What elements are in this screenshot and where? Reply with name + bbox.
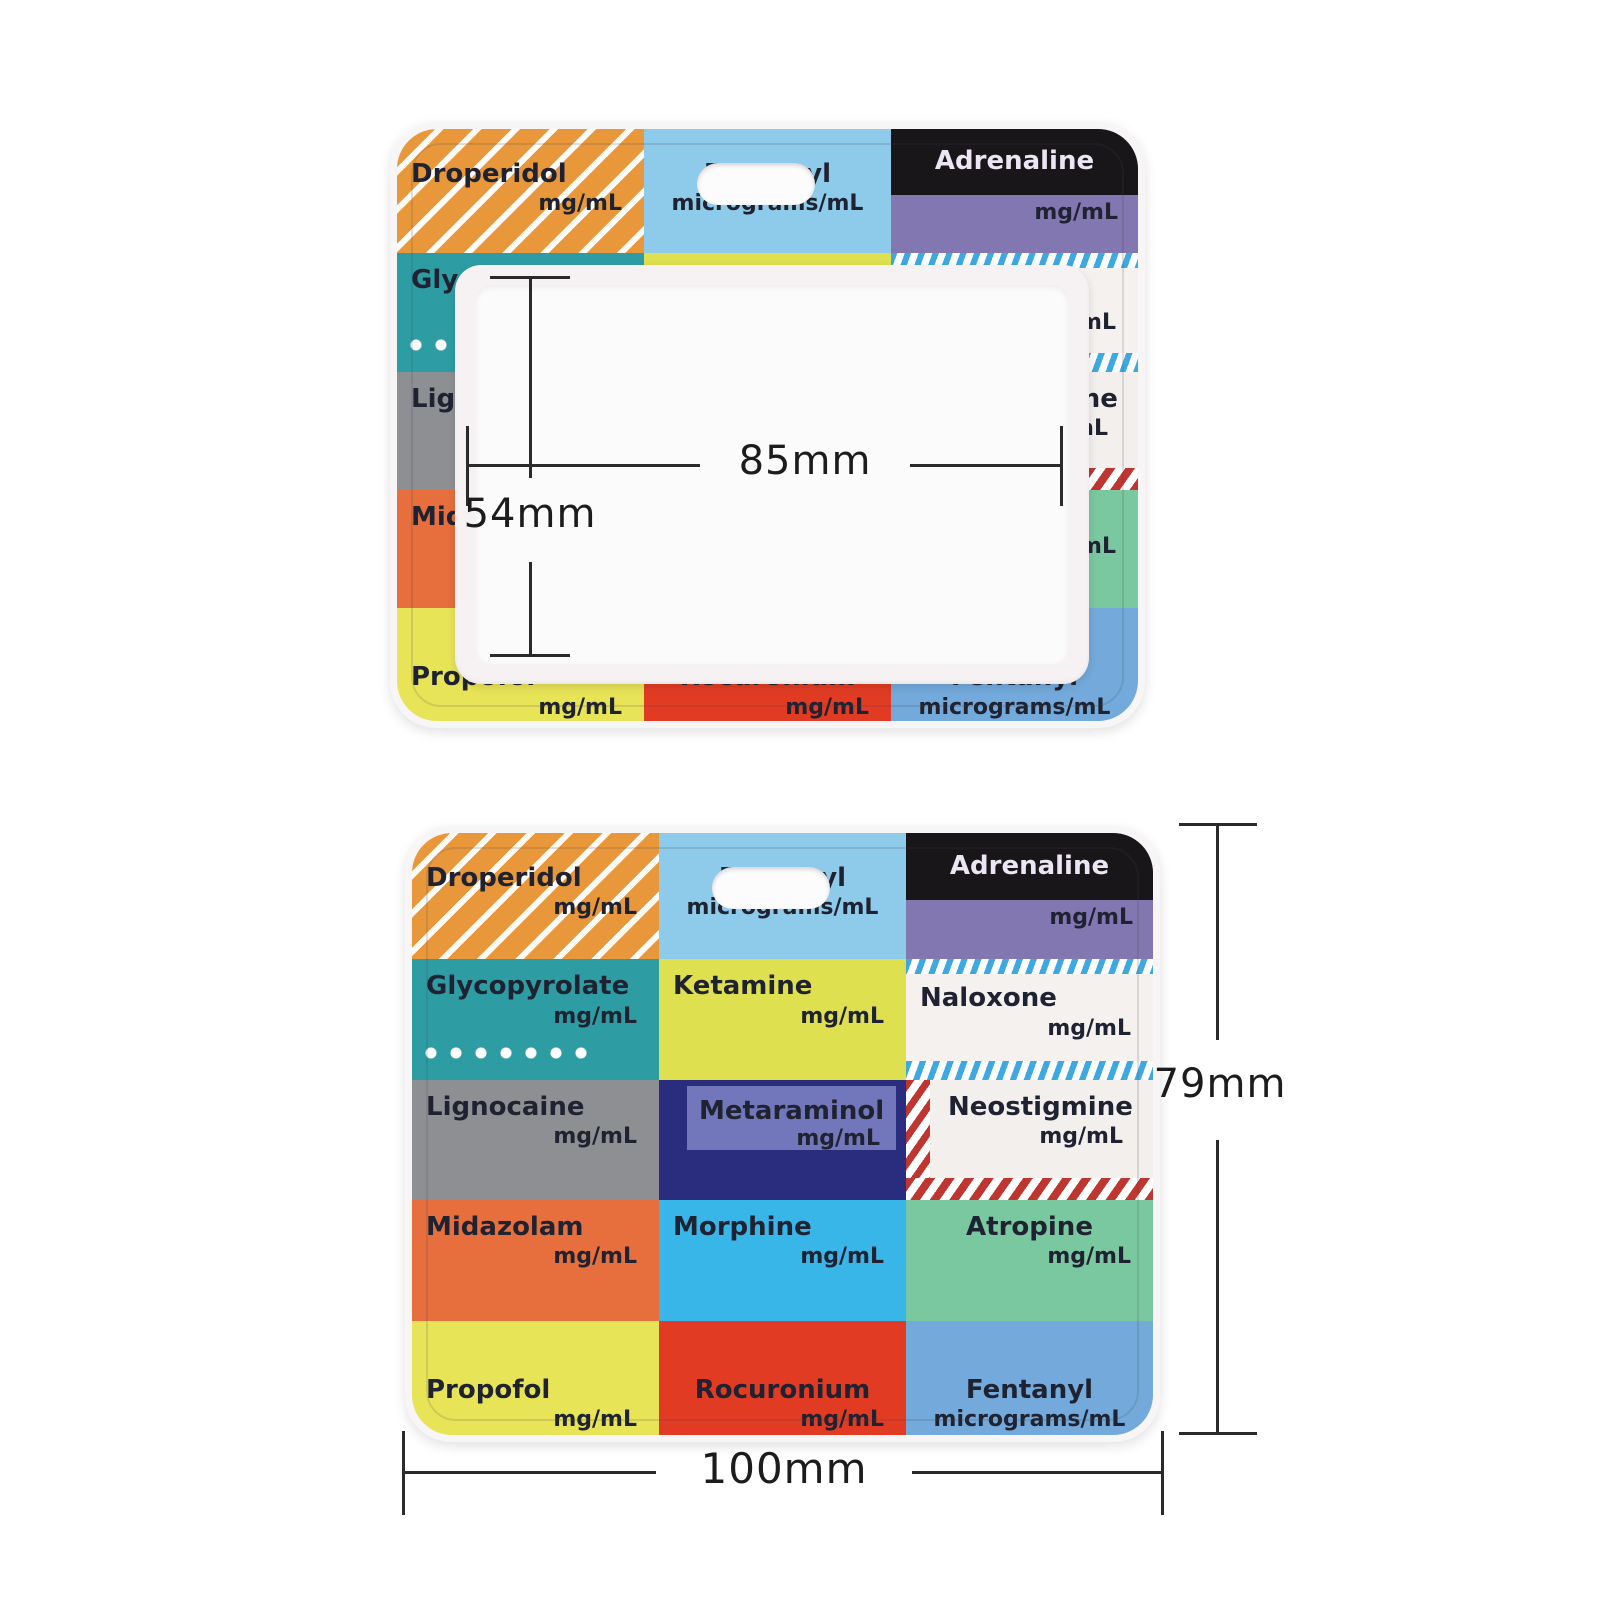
drug-cell-morphine: Morphinemg/mL bbox=[659, 1200, 906, 1320]
drug-name: Rocuronium bbox=[695, 1377, 871, 1404]
drug-concentration-unit: mg/mL bbox=[1034, 201, 1118, 225]
drug-cell-ketamine: Ketaminemg/mL bbox=[659, 959, 906, 1079]
drug-name: Fentanyl bbox=[966, 1377, 1093, 1404]
drug-cell-glycopyrolate: Glycopyrolatemg/mL bbox=[412, 959, 659, 1079]
drug-name: Droperidol bbox=[411, 161, 644, 188]
drug-cell-metaraminol: Metaraminolmg/mL bbox=[659, 1080, 906, 1200]
drug-concentration-unit: mg/mL bbox=[800, 1245, 884, 1269]
drug-cell-droperidol: Droperidolmg/mL bbox=[412, 833, 659, 959]
drug-concentration-unit: mg/mL bbox=[538, 192, 622, 216]
drug-concentration-unit: micrograms/mL bbox=[919, 696, 1111, 720]
label-unit-band: mg/mL bbox=[891, 195, 1138, 253]
drug-concentration-unit: mg/mL bbox=[1039, 1125, 1123, 1149]
dimension-line bbox=[912, 1471, 1162, 1474]
drug-card-front: Droperidolmg/mLFentanylmicrograms/mLAdre… bbox=[405, 826, 1160, 1442]
drug-concentration-unit: mg/mL bbox=[553, 1005, 637, 1029]
drug-cell-adrenaline: Adrenalinemg/mL bbox=[891, 129, 1138, 253]
lanyard-slot-hole bbox=[712, 867, 830, 909]
card-height-label: 79mm bbox=[1120, 1064, 1320, 1104]
drug-concentration-unit: mg/mL bbox=[800, 1005, 884, 1029]
drug-name: Adrenaline bbox=[950, 853, 1109, 880]
drug-name: Ketamine bbox=[673, 973, 906, 1000]
drug-cell-adrenaline: Adrenalinemg/mL bbox=[906, 833, 1153, 959]
window-height-label: 54mm bbox=[430, 494, 630, 534]
dimension-line bbox=[1216, 1140, 1219, 1434]
drug-concentration-unit: mg/mL bbox=[553, 1125, 637, 1149]
product-photo-scene: Droperidolmg/mLFentanylmicrograms/mLAdre… bbox=[0, 0, 1600, 1600]
drug-concentration-unit: micrograms/mL bbox=[934, 1408, 1126, 1432]
drug-concentration-unit: mg/mL bbox=[785, 696, 869, 720]
dimension-line bbox=[910, 464, 1060, 467]
drug-cell-neostigmine: Neostigminemg/mL bbox=[906, 1080, 1153, 1200]
drug-name: Droperidol bbox=[426, 865, 659, 892]
drug-name: Midazolam bbox=[426, 1214, 659, 1241]
drug-cell-propofol: Propofolmg/mL bbox=[412, 1321, 659, 1435]
dimension-line bbox=[469, 464, 700, 467]
drug-concentration-unit: mg/mL bbox=[553, 1245, 637, 1269]
dimension-line bbox=[529, 278, 532, 478]
window-width-label: 85mm bbox=[700, 441, 910, 481]
drug-name: Propofol bbox=[426, 1377, 659, 1404]
drug-name: Naloxone bbox=[920, 985, 1153, 1012]
drug-name: Glycopyrolate bbox=[426, 973, 659, 1000]
dimension-line bbox=[1216, 825, 1219, 1040]
drug-concentration-unit: mg/mL bbox=[538, 696, 622, 720]
label-inner-panel: Metaraminolmg/mL bbox=[687, 1086, 896, 1150]
drug-cell-midazolam: Midazolammg/mL bbox=[412, 1200, 659, 1320]
white-dots-decoration bbox=[424, 1046, 600, 1060]
drug-cell-fentanyl-bottom: Fentanylmicrograms/mL bbox=[906, 1321, 1153, 1435]
drug-name: Lignocaine bbox=[426, 1094, 659, 1121]
drug-name: Atropine bbox=[966, 1214, 1093, 1241]
drug-concentration-unit: mg/mL bbox=[1049, 906, 1133, 930]
label-header-band: Adrenaline bbox=[891, 129, 1138, 195]
drug-concentration-unit: mg/mL bbox=[1047, 1245, 1131, 1269]
drug-cell-rocuronium: Rocuroniummg/mL bbox=[659, 1321, 906, 1435]
drug-name: Morphine bbox=[673, 1214, 906, 1241]
drug-cell-droperidol: Droperidolmg/mL bbox=[397, 129, 644, 253]
drug-cell-atropine: Atropinemg/mL bbox=[906, 1200, 1153, 1320]
drug-concentration-unit: mg/mL bbox=[800, 1408, 884, 1432]
dimension-tick bbox=[490, 654, 570, 657]
drug-label-grid: Droperidolmg/mLFentanylmicrograms/mLAdre… bbox=[412, 833, 1153, 1435]
drug-concentration-unit: mg/mL bbox=[1047, 1017, 1131, 1041]
drug-concentration-unit: mg/mL bbox=[796, 1127, 880, 1151]
drug-concentration-unit: mg/mL bbox=[553, 1408, 637, 1432]
drug-name: Adrenaline bbox=[935, 148, 1094, 175]
lanyard-slot-hole bbox=[697, 163, 815, 205]
drug-cell-naloxone: Naloxonemg/mL bbox=[906, 959, 1153, 1079]
badge-holder-front: Droperidolmg/mLFentanylmicrograms/mLAdre… bbox=[390, 122, 1145, 728]
label-header-band: Adrenaline bbox=[906, 833, 1153, 900]
drug-name: Metaraminol bbox=[699, 1098, 896, 1125]
dimension-tick bbox=[1060, 426, 1063, 506]
card-width-label: 100mm bbox=[656, 1448, 912, 1490]
drug-cell-lignocaine: Lignocainemg/mL bbox=[412, 1080, 659, 1200]
dimension-line bbox=[529, 562, 532, 654]
drug-concentration-unit: mg/mL bbox=[553, 896, 637, 920]
label-unit-band: mg/mL bbox=[906, 900, 1153, 959]
dimension-line bbox=[404, 1471, 656, 1474]
